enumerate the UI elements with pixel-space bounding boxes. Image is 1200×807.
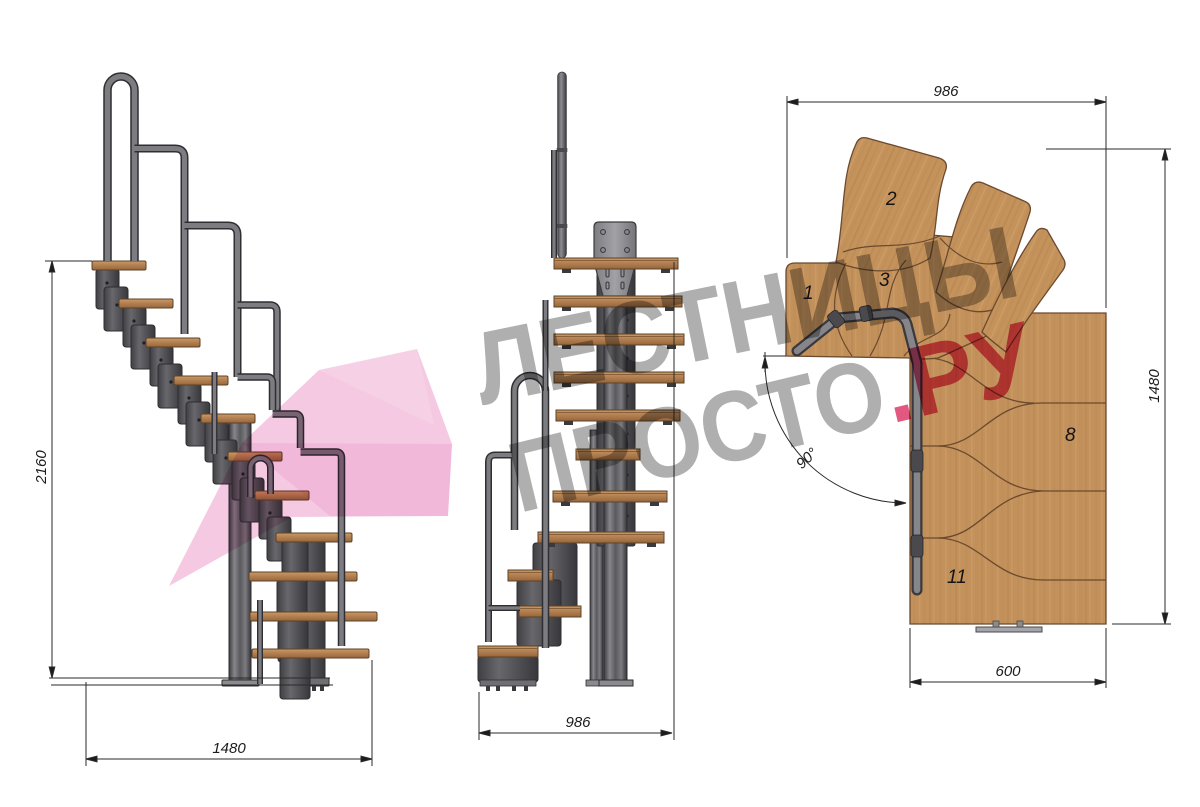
- svg-text:1480: 1480: [1146, 369, 1163, 403]
- svg-text:2160: 2160: [33, 450, 50, 485]
- svg-text:8: 8: [1065, 425, 1076, 446]
- svg-text:11: 11: [947, 567, 967, 588]
- svg-text:986: 986: [933, 83, 959, 100]
- svg-text:600: 600: [995, 663, 1021, 680]
- svg-text:1480: 1480: [212, 740, 246, 757]
- svg-text:2: 2: [885, 189, 897, 210]
- svg-text:986: 986: [565, 714, 591, 731]
